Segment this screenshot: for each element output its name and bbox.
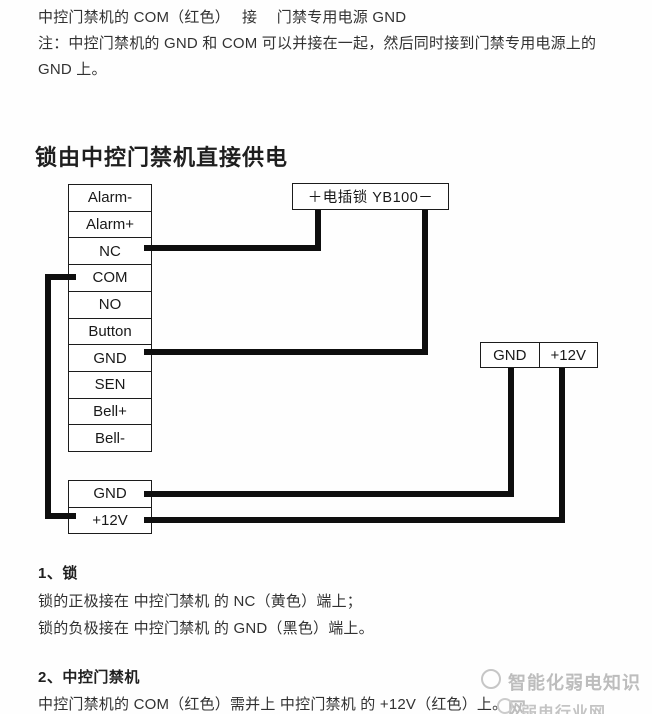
wire-lock-positive-drop xyxy=(315,210,321,251)
power-terminal-gnd: GND xyxy=(481,343,539,367)
terminal-gnd: GND xyxy=(69,345,151,372)
controller-terminal-block: Alarm- Alarm+ NC COM NO Button GND SEN B… xyxy=(68,184,152,452)
power-terminal-12v: +12V xyxy=(539,343,598,367)
terminal-bell-minus: Bell- xyxy=(69,425,151,451)
intro-line-3: GND 上。 xyxy=(38,60,107,79)
terminal-com: COM xyxy=(69,265,151,292)
watermark-subtext: 弱电行业网 xyxy=(521,699,606,714)
wire-lock-negative-drop xyxy=(422,210,428,355)
watermark-logo-icon xyxy=(481,669,501,689)
document-page: 中控门禁机的 COM（红色） 接 门禁专用电源 GND 注：中控门禁机的 GND… xyxy=(0,0,652,714)
terminal-no: NO xyxy=(69,292,151,319)
note-section2-title: 2、中控门禁机 xyxy=(38,666,140,687)
wire-lower-12v-horizontal xyxy=(144,517,565,523)
wire-nc-horizontal xyxy=(144,245,321,251)
terminal-button: Button xyxy=(69,319,151,346)
wire-power-gnd-drop xyxy=(508,368,514,497)
controller-power-12v: +12V xyxy=(69,508,151,534)
note-section2-line1: 中控门禁机的 COM（红色）需并上 中控门禁机 的 +12V（红色）上。 xyxy=(38,693,507,714)
lock-box: ＋电插锁 YB100－ xyxy=(292,183,449,210)
wire-power-12v-drop xyxy=(559,368,565,523)
note-section1-title: 1、锁 xyxy=(38,562,78,583)
note-section1-line1: 锁的正极接在 中控门禁机 的 NC（黄色）端上； xyxy=(38,590,362,611)
terminal-sen: SEN xyxy=(69,372,151,399)
terminal-bell-plus: Bell+ xyxy=(69,399,151,426)
power-supply-box: GND +12V xyxy=(480,342,598,368)
wire-com-vertical xyxy=(45,274,51,519)
wire-lower-gnd-horizontal xyxy=(144,491,514,497)
watermark-logo-small-icon xyxy=(497,698,513,714)
intro-line-1: 中控门禁机的 COM（红色） 接 门禁专用电源 GND xyxy=(38,8,406,27)
controller-power-block: GND +12V xyxy=(68,480,152,534)
diagram-title: 锁由中控门禁机直接供电 xyxy=(35,140,288,172)
wire-com-stub-bottom xyxy=(45,513,76,519)
controller-power-gnd: GND xyxy=(69,481,151,508)
terminal-alarm-plus: Alarm+ xyxy=(69,212,151,239)
intro-line-2: 注：中控门禁机的 GND 和 COM 可以并接在一起，然后同时接到门禁专用电源上… xyxy=(38,34,596,53)
terminal-alarm-minus: Alarm- xyxy=(69,185,151,212)
terminal-nc: NC xyxy=(69,238,151,265)
wire-gnd-horizontal xyxy=(144,349,428,355)
note-section1-line2: 锁的负极接在 中控门禁机 的 GND（黑色）端上。 xyxy=(38,617,374,638)
